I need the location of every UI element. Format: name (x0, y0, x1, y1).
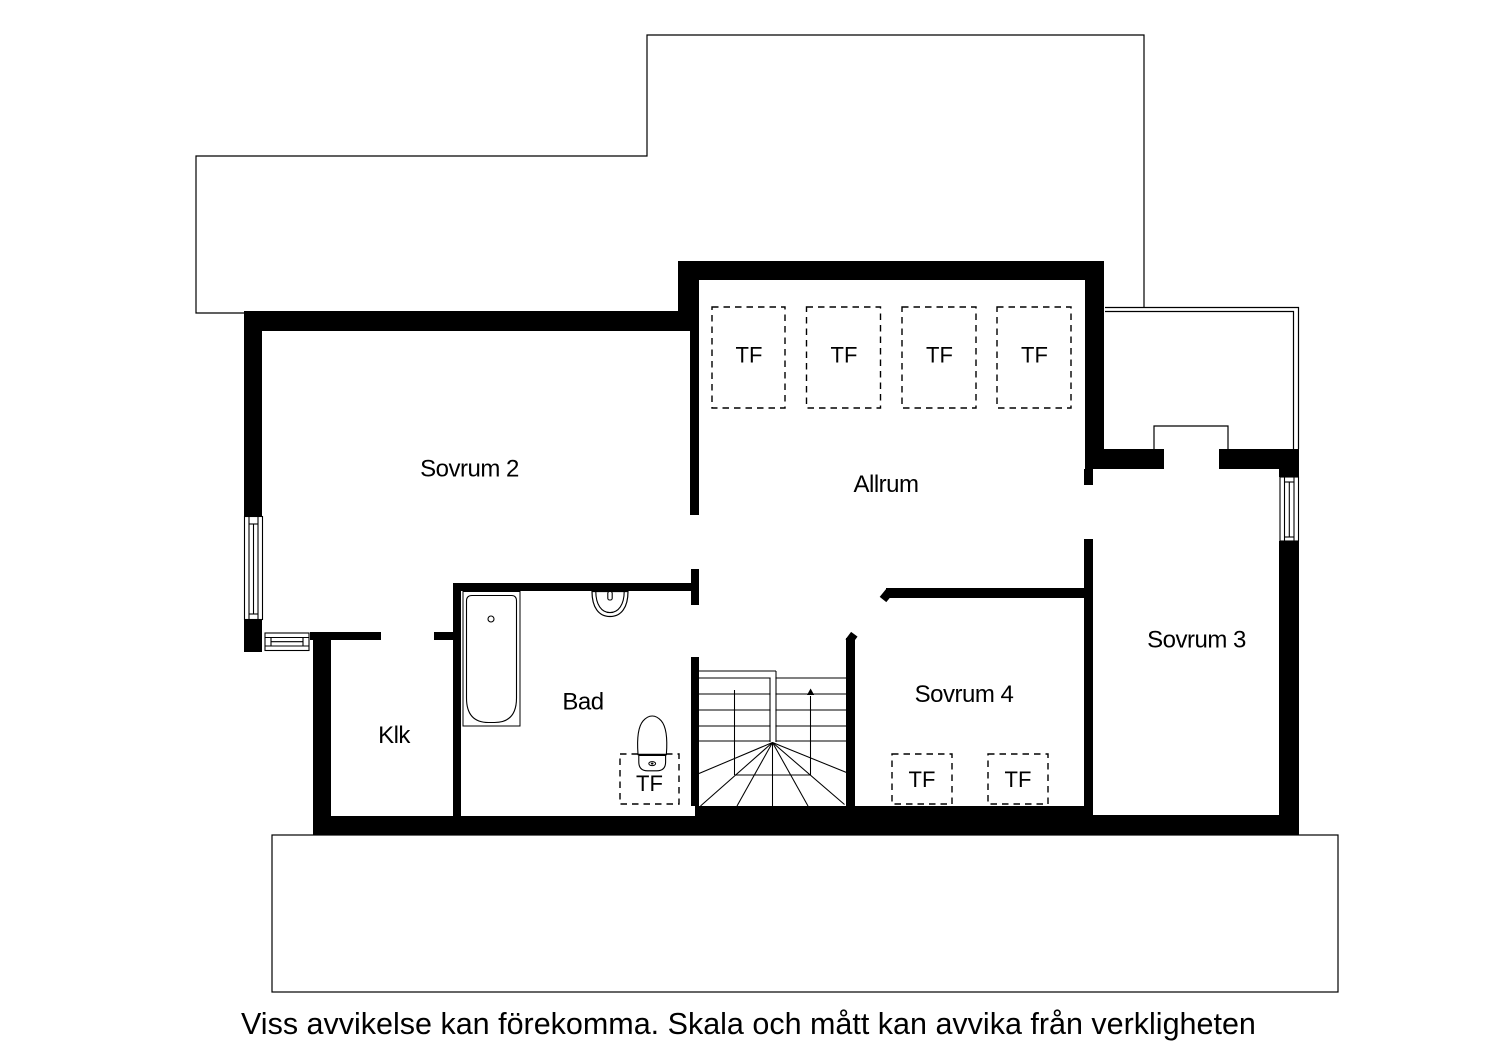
svg-text:Viss avvikelse kan förekomma.: Viss avvikelse kan förekomma. Skala och … (241, 1007, 1256, 1041)
svg-text:Sovrum 2: Sovrum 2 (420, 456, 519, 483)
svg-text:TF: TF (831, 343, 858, 368)
svg-text:TF: TF (1005, 767, 1032, 792)
svg-text:Sovrum 4: Sovrum 4 (915, 681, 1014, 708)
svg-text:TF: TF (636, 771, 663, 796)
svg-text:TF: TF (1021, 343, 1048, 368)
svg-text:Allrum: Allrum (853, 471, 918, 498)
svg-text:TF: TF (909, 767, 936, 792)
svg-text:TF: TF (736, 343, 763, 368)
svg-text:Bad: Bad (562, 689, 603, 716)
svg-text:Sovrum 3: Sovrum 3 (1147, 627, 1246, 654)
svg-text:TF: TF (926, 343, 953, 368)
svg-text:Klk: Klk (378, 722, 411, 749)
